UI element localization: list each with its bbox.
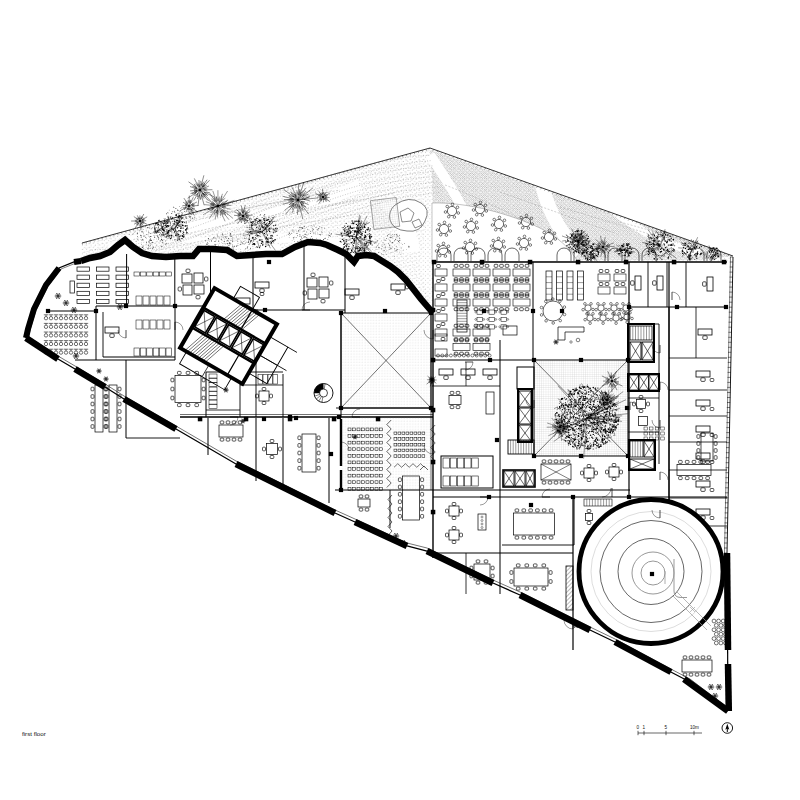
svg-text:5: 5 bbox=[665, 725, 668, 730]
svg-text:1: 1 bbox=[643, 725, 646, 730]
svg-text:10m: 10m bbox=[690, 725, 699, 730]
svg-text:first floor: first floor bbox=[22, 730, 46, 737]
svg-text:0: 0 bbox=[637, 725, 640, 730]
